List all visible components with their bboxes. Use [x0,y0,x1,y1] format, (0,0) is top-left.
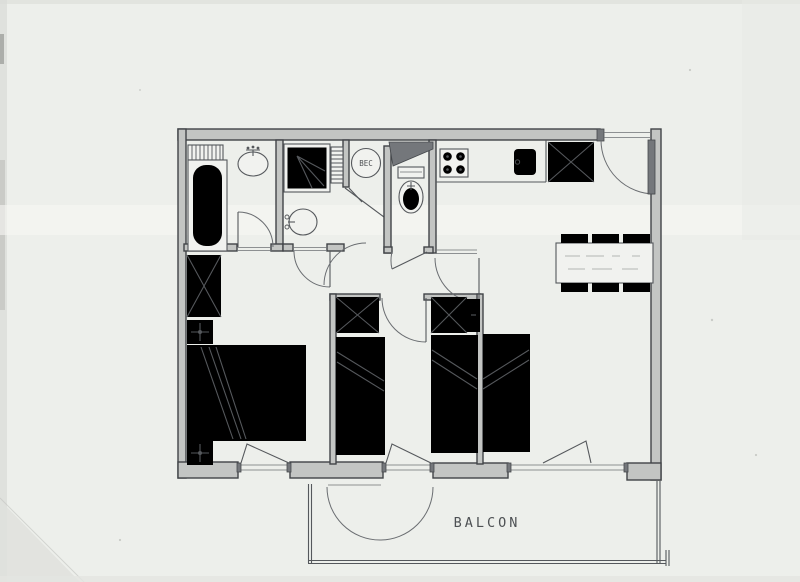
kitchen-sink-icon [514,149,536,175]
dining-table-icon [556,243,653,283]
bathtub-icon [188,160,227,251]
wardrobe-icon [187,255,221,317]
wardrobe-icon [431,297,467,333]
wardrobe-icon [548,142,594,182]
single-bed-icon [336,337,385,455]
shower-icon [284,144,330,192]
wardrobe-icon [336,297,379,333]
balcony-label: BALCON [454,515,521,531]
single-bed-icon [431,335,478,453]
water-heater-label: BEC [359,159,373,168]
double-bed-icon [187,345,306,441]
cabinet-icon [467,299,480,332]
stove-icon [440,149,468,177]
toilet-icon [398,167,424,213]
nightstand-lamp-icon [187,441,213,465]
towel-radiator-icon [188,145,223,160]
single-bed-icon [483,334,530,452]
floor-plan-drawing: BEC [0,0,800,582]
nightstand-lamp-icon [187,320,213,344]
towel-radiator-icon [331,147,343,183]
scan-artifacts [0,0,800,582]
scanned-floor-plan-page: BEC [0,0,800,582]
